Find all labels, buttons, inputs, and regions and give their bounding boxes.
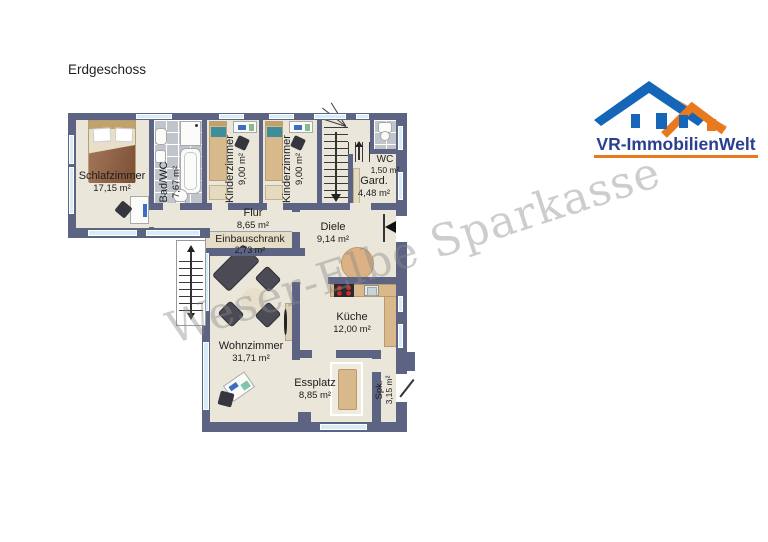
wardrobe bbox=[353, 168, 360, 204]
child-desk bbox=[289, 121, 313, 133]
logo-blue-roof-icon bbox=[594, 81, 705, 126]
door-opening bbox=[267, 203, 283, 210]
vr-immobilienwelt-logo: VR-ImmobilienWelt bbox=[592, 79, 760, 163]
exterior-staircase bbox=[176, 240, 206, 326]
mousepad bbox=[240, 380, 251, 390]
window bbox=[203, 342, 209, 410]
bed-pillow bbox=[115, 128, 134, 143]
window bbox=[398, 296, 403, 312]
wall bbox=[202, 248, 305, 256]
window bbox=[314, 114, 346, 119]
stove bbox=[334, 284, 354, 297]
bed-headboard bbox=[210, 122, 226, 126]
monitor bbox=[238, 125, 246, 130]
double-bed bbox=[88, 120, 136, 182]
washer-knob bbox=[195, 124, 198, 127]
chimney bbox=[398, 352, 415, 371]
bed-pillow-teal bbox=[267, 127, 282, 137]
stair-direction-line bbox=[335, 132, 337, 194]
door-opening bbox=[292, 256, 300, 282]
monitor bbox=[143, 204, 147, 217]
sink bbox=[155, 128, 167, 145]
laptop bbox=[228, 382, 238, 391]
logo-window bbox=[679, 115, 688, 128]
logo-window bbox=[656, 113, 667, 129]
plant bbox=[249, 124, 254, 131]
page-title: Erdgeschoss bbox=[68, 62, 146, 77]
bathtub-inner bbox=[184, 152, 197, 190]
floorplan-page: Erdgeschoss bbox=[0, 0, 768, 542]
wall bbox=[259, 120, 263, 203]
logo-window bbox=[631, 114, 640, 128]
logo-window bbox=[707, 119, 716, 131]
dresser bbox=[265, 185, 283, 200]
door-opening bbox=[372, 359, 381, 372]
door-opening bbox=[300, 277, 328, 284]
sink-basin bbox=[367, 287, 377, 296]
window bbox=[219, 114, 244, 119]
logo-brand-text: VR-ImmobilienWelt bbox=[596, 134, 755, 154]
wc-toilet bbox=[380, 131, 390, 141]
entrance-arrow-icon bbox=[385, 221, 396, 233]
window bbox=[356, 114, 369, 119]
down-arrow-icon bbox=[187, 313, 195, 320]
door-opening bbox=[312, 350, 336, 358]
window bbox=[320, 424, 367, 430]
window bbox=[398, 172, 403, 200]
door-opening bbox=[149, 210, 154, 227]
child-bed bbox=[265, 121, 283, 181]
dresser bbox=[209, 185, 227, 200]
wall bbox=[202, 120, 207, 203]
bed-pillow-teal bbox=[211, 127, 226, 137]
window bbox=[398, 324, 403, 348]
kitchen-sink bbox=[364, 285, 379, 296]
child-bed bbox=[209, 121, 227, 181]
logo-underline bbox=[594, 155, 758, 158]
wall-stub bbox=[298, 412, 311, 422]
window bbox=[88, 230, 137, 236]
bed-headboard bbox=[266, 122, 282, 126]
down-arrow-icon bbox=[331, 194, 341, 202]
door-opening bbox=[350, 203, 371, 210]
window bbox=[69, 167, 74, 214]
door-opening bbox=[292, 212, 300, 232]
dining-table bbox=[338, 369, 357, 410]
wall bbox=[317, 120, 322, 203]
window bbox=[398, 126, 403, 150]
bed-blanket bbox=[89, 145, 135, 183]
window bbox=[69, 135, 74, 164]
washing-machine bbox=[180, 121, 201, 146]
bathtub bbox=[180, 148, 201, 194]
window bbox=[269, 114, 294, 119]
monitor bbox=[294, 125, 302, 130]
up-arrow-icon bbox=[355, 141, 363, 147]
wall bbox=[348, 154, 353, 210]
stair-direction-line bbox=[190, 249, 192, 315]
entrance-door-opening bbox=[396, 216, 407, 242]
tv bbox=[284, 309, 287, 335]
bidet bbox=[155, 150, 166, 163]
window bbox=[146, 230, 200, 236]
window bbox=[136, 114, 172, 119]
plant bbox=[305, 124, 310, 131]
up-arrow-icon bbox=[187, 245, 195, 252]
bed-pillow bbox=[93, 127, 112, 142]
desk bbox=[130, 196, 149, 224]
round-table bbox=[341, 247, 374, 280]
child-desk bbox=[233, 121, 257, 133]
door-opening bbox=[212, 203, 228, 210]
door-opening bbox=[163, 203, 180, 210]
